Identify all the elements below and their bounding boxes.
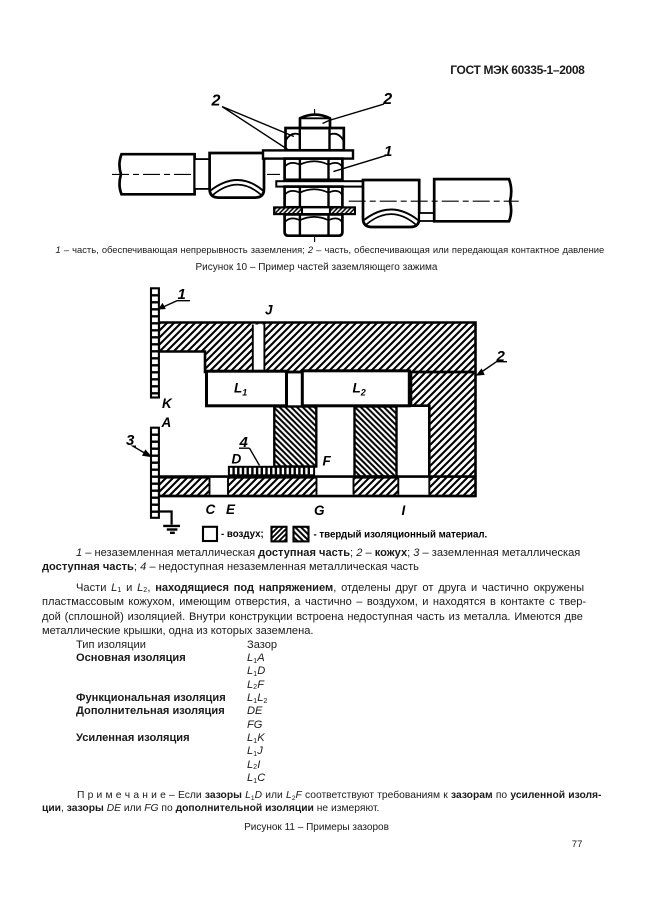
svg-text:1: 1 bbox=[178, 286, 186, 303]
svg-text:3: 3 bbox=[126, 432, 135, 449]
svg-text:I: I bbox=[402, 503, 406, 518]
svg-text:- твердый изоляционный материа: - твердый изоляционный материал. bbox=[314, 529, 488, 540]
svg-text:F: F bbox=[323, 454, 332, 469]
svg-text:K: K bbox=[162, 396, 173, 411]
svg-text:J: J bbox=[265, 303, 273, 318]
svg-text:4: 4 bbox=[239, 434, 249, 451]
svg-text:2: 2 bbox=[211, 93, 221, 110]
svg-text:C: C bbox=[206, 502, 216, 517]
svg-text:2: 2 bbox=[496, 348, 506, 365]
svg-text:E: E bbox=[226, 502, 236, 517]
svg-text:D: D bbox=[232, 452, 242, 467]
svg-text:1: 1 bbox=[384, 143, 392, 160]
svg-text:G: G bbox=[314, 503, 325, 518]
svg-text:A: A bbox=[161, 415, 172, 430]
svg-text:2: 2 bbox=[382, 91, 392, 108]
svg-text:- воздух;: - воздух; bbox=[221, 529, 264, 540]
